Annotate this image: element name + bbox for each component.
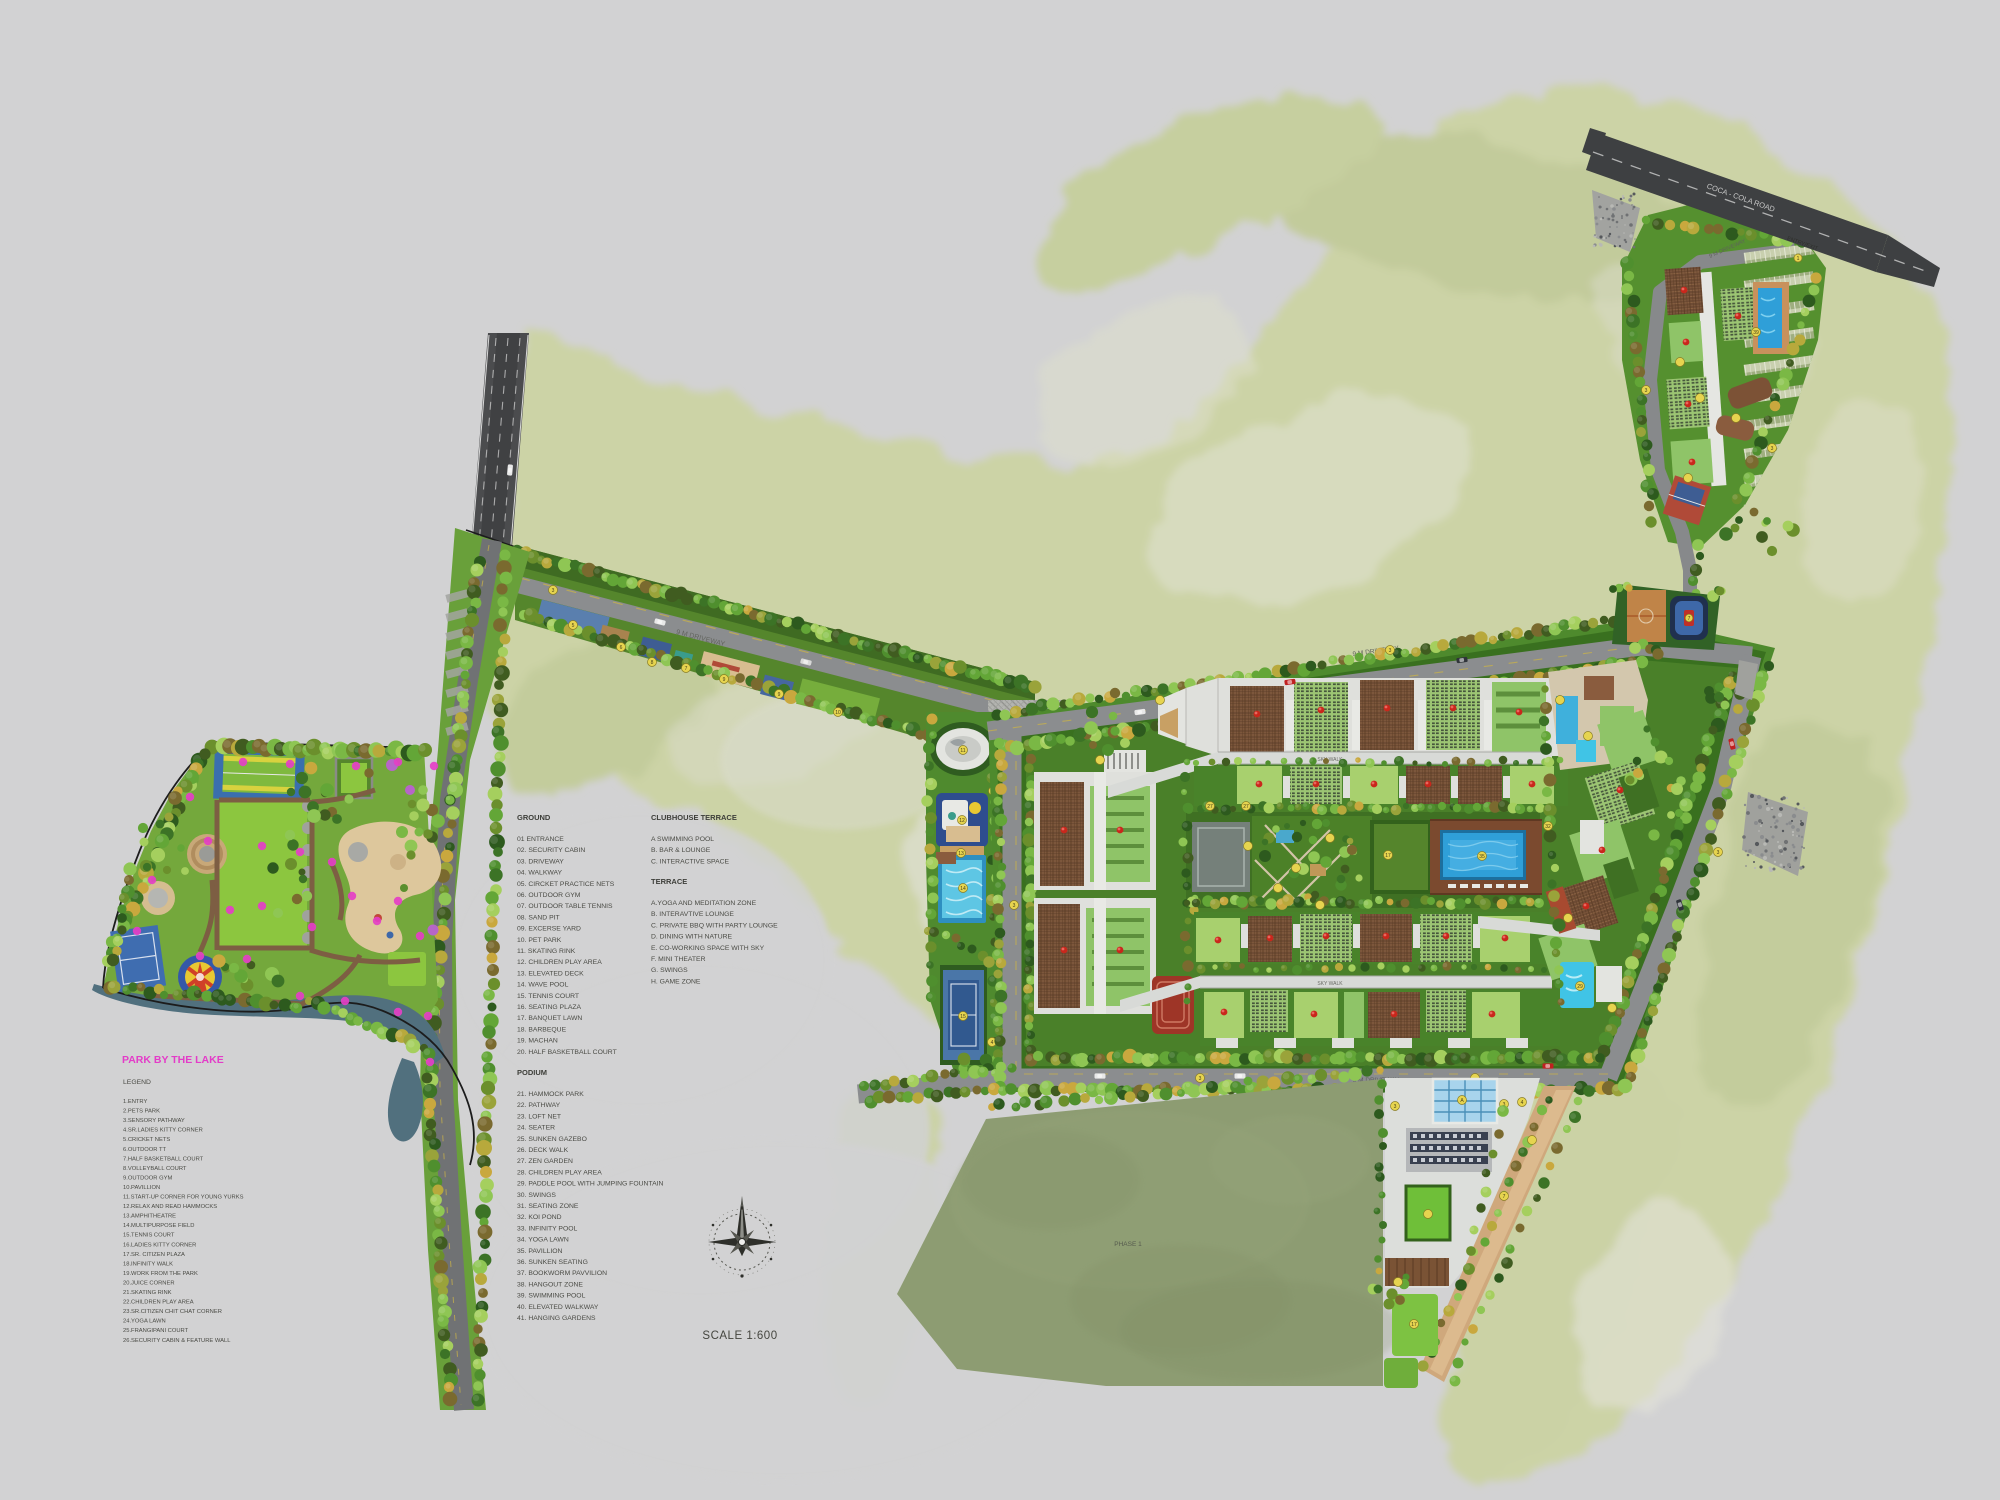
svg-text:22.CHILDREN PLAY AREA: 22.CHILDREN PLAY AREA bbox=[123, 1300, 194, 1306]
svg-text:23. LOFT NET: 23. LOFT NET bbox=[517, 1113, 561, 1120]
svg-text:12.RELAX AND READ HAMMOCKS: 12.RELAX AND READ HAMMOCKS bbox=[123, 1204, 217, 1210]
svg-text:SKY WALK: SKY WALK bbox=[1317, 981, 1343, 987]
svg-text:F. MINI THEATER: F. MINI THEATER bbox=[651, 956, 706, 963]
svg-text:02. SECURITY CABIN: 02. SECURITY CABIN bbox=[517, 847, 585, 854]
svg-text:13.AMPHITHEATRE: 13.AMPHITHEATRE bbox=[123, 1214, 176, 1220]
svg-text:25. SUNKEN GAZEBO: 25. SUNKEN GAZEBO bbox=[517, 1136, 587, 1143]
svg-text:39. SWIMMING POOL: 39. SWIMMING POOL bbox=[517, 1293, 586, 1300]
svg-text:06. OUTDOOR GYM: 06. OUTDOOR GYM bbox=[517, 892, 581, 899]
svg-text:15.TENNIS COURT: 15.TENNIS COURT bbox=[123, 1233, 175, 1239]
svg-text:26. DECK WALK: 26. DECK WALK bbox=[517, 1147, 569, 1154]
svg-text:34. YOGA LAWN: 34. YOGA LAWN bbox=[517, 1237, 569, 1244]
svg-text:7.HALF BASKETBALL COURT: 7.HALF BASKETBALL COURT bbox=[123, 1156, 204, 1162]
svg-text:4: 4 bbox=[1521, 1100, 1524, 1106]
svg-text:11.START-UP CORNER FOR YOUNG Y: 11.START-UP CORNER FOR YOUNG YURKS bbox=[123, 1195, 244, 1201]
svg-text:10: 10 bbox=[835, 710, 841, 716]
svg-text:14.MULTIPURPOSE FIELD: 14.MULTIPURPOSE FIELD bbox=[123, 1223, 194, 1229]
svg-text:15: 15 bbox=[960, 1014, 966, 1020]
svg-text:5: 5 bbox=[572, 623, 575, 629]
svg-text:18.INFINITY WALK: 18.INFINITY WALK bbox=[123, 1261, 173, 1267]
svg-text:37. BOOKWORM PAVVILION: 37. BOOKWORM PAVVILION bbox=[517, 1270, 607, 1277]
svg-text:28. CHILDREN PLAY AREA: 28. CHILDREN PLAY AREA bbox=[517, 1169, 602, 1176]
svg-text:08. SAND PIT: 08. SAND PIT bbox=[517, 914, 560, 921]
svg-text:5.CRICKET NETS: 5.CRICKET NETS bbox=[123, 1137, 170, 1143]
svg-text:39: 39 bbox=[1753, 330, 1759, 336]
svg-text:21. HAMMOCK PARK: 21. HAMMOCK PARK bbox=[517, 1091, 584, 1098]
svg-text:11. SKATING RINK: 11. SKATING RINK bbox=[517, 948, 576, 955]
svg-text:18. BARBEQUE: 18. BARBEQUE bbox=[517, 1026, 567, 1033]
svg-text:14: 14 bbox=[960, 886, 966, 892]
svg-text:9: 9 bbox=[778, 692, 781, 698]
svg-text:26.SECURITY CABIN & FEATURE WA: 26.SECURITY CABIN & FEATURE WALL bbox=[123, 1338, 231, 1344]
svg-text:35. PAVILLION: 35. PAVILLION bbox=[517, 1248, 563, 1255]
svg-text:9.OUTDOOR GYM: 9.OUTDOOR GYM bbox=[123, 1175, 172, 1181]
svg-text:TERRACE: TERRACE bbox=[651, 877, 687, 886]
svg-text:29. PADDLE POOL WITH JUMPING F: 29. PADDLE POOL WITH JUMPING FOUNTAIN bbox=[517, 1181, 663, 1188]
svg-text:38. HANGOUT ZONE: 38. HANGOUT ZONE bbox=[517, 1281, 583, 1288]
svg-text:1.ENTRY: 1.ENTRY bbox=[123, 1099, 148, 1105]
svg-text:20. HALF BASKETBALL COURT: 20. HALF BASKETBALL COURT bbox=[517, 1049, 617, 1056]
svg-text:7: 7 bbox=[1688, 616, 1691, 622]
svg-text:10.PAVILLION: 10.PAVILLION bbox=[123, 1185, 160, 1191]
svg-text:CLUBHOUSE TERRACE: CLUBHOUSE TERRACE bbox=[651, 813, 737, 822]
svg-text:17: 17 bbox=[1411, 1322, 1417, 1328]
svg-text:E. CO-WORKING SPACE WITH SKY: E. CO-WORKING SPACE WITH SKY bbox=[651, 945, 765, 952]
svg-text:17: 17 bbox=[1385, 853, 1391, 859]
svg-text:6: 6 bbox=[620, 645, 623, 651]
svg-text:20.JUICE CORNER: 20.JUICE CORNER bbox=[123, 1280, 175, 1286]
svg-text:12: 12 bbox=[959, 818, 965, 824]
svg-text:C. INTERACTIVE SPACE: C. INTERACTIVE SPACE bbox=[651, 858, 730, 865]
svg-text:16.LADIES KITTY CORNER: 16.LADIES KITTY CORNER bbox=[123, 1242, 196, 1248]
svg-text:24. SEATER: 24. SEATER bbox=[517, 1125, 555, 1132]
svg-text:25.FRANGIPANI COURT: 25.FRANGIPANI COURT bbox=[123, 1328, 189, 1334]
svg-text:PARK BY THE LAKE: PARK BY THE LAKE bbox=[122, 1054, 224, 1066]
svg-text:10. PET PARK: 10. PET PARK bbox=[517, 937, 562, 944]
svg-text:19.WORK FROM THE PARK: 19.WORK FROM THE PARK bbox=[123, 1271, 198, 1277]
svg-text:PHASE 1: PHASE 1 bbox=[1114, 1241, 1142, 1248]
svg-text:24.YOGA LAWN: 24.YOGA LAWN bbox=[123, 1319, 166, 1325]
svg-text:21.SKATING RINK: 21.SKATING RINK bbox=[123, 1290, 172, 1296]
svg-text:22. PATHWAY: 22. PATHWAY bbox=[517, 1102, 561, 1109]
svg-text:13. ELEVATED DECK: 13. ELEVATED DECK bbox=[517, 970, 584, 977]
svg-text:14. WAVE POOL: 14. WAVE POOL bbox=[517, 982, 569, 989]
svg-text:3: 3 bbox=[1645, 388, 1648, 394]
svg-text:36. SUNKEN SEATING: 36. SUNKEN SEATING bbox=[517, 1259, 588, 1266]
svg-text:B. INTERAVTIVE LOUNGE: B. INTERAVTIVE LOUNGE bbox=[651, 911, 734, 918]
svg-text:3: 3 bbox=[552, 588, 555, 594]
svg-text:8: 8 bbox=[651, 660, 654, 666]
svg-text:05. CIRCKET PRACTICE NETS: 05. CIRCKET PRACTICE NETS bbox=[517, 881, 615, 888]
svg-text:4: 4 bbox=[991, 1040, 994, 1046]
svg-text:H. GAME ZONE: H. GAME ZONE bbox=[651, 978, 701, 985]
svg-text:3.SENSORY PATHWAY: 3.SENSORY PATHWAY bbox=[123, 1118, 185, 1124]
svg-text:17.SR. CITIZEN PLAZA: 17.SR. CITIZEN PLAZA bbox=[123, 1252, 185, 1258]
svg-text:3: 3 bbox=[1389, 648, 1392, 654]
svg-text:35: 35 bbox=[1479, 854, 1485, 860]
svg-text:41. HANGING GARDENS: 41. HANGING GARDENS bbox=[517, 1315, 596, 1322]
svg-text:1: 1 bbox=[1797, 256, 1800, 262]
svg-text:13: 13 bbox=[958, 851, 964, 857]
svg-text:3: 3 bbox=[1394, 1104, 1397, 1110]
svg-text:12. CHILDREN PLAY AREA: 12. CHILDREN PLAY AREA bbox=[517, 959, 602, 966]
svg-text:27: 27 bbox=[1243, 804, 1249, 810]
svg-text:16. SEATING PLAZA: 16. SEATING PLAZA bbox=[517, 1004, 582, 1011]
svg-text:7: 7 bbox=[1503, 1194, 1506, 1200]
svg-text:03. DRIVEWAY: 03. DRIVEWAY bbox=[517, 858, 564, 865]
svg-text:D. DINING WITH NATURE: D. DINING WITH NATURE bbox=[651, 934, 733, 941]
svg-text:A SWIMMING POOL: A SWIMMING POOL bbox=[651, 836, 714, 843]
svg-text:B. BAR & LOUNGE: B. BAR & LOUNGE bbox=[651, 847, 711, 854]
svg-text:11: 11 bbox=[960, 748, 965, 754]
svg-text:23.SR.CITIZEN CHIT CHAT CORNER: 23.SR.CITIZEN CHIT CHAT CORNER bbox=[123, 1309, 222, 1315]
svg-text:LEGEND: LEGEND bbox=[123, 1079, 151, 1086]
svg-text:40. ELEVATED WALKWAY: 40. ELEVATED WALKWAY bbox=[517, 1304, 599, 1311]
svg-text:3: 3 bbox=[1199, 1076, 1202, 1082]
svg-text:07. OUTDOOR TABLE TENNIS: 07. OUTDOOR TABLE TENNIS bbox=[517, 903, 613, 910]
svg-text:9: 9 bbox=[723, 677, 726, 683]
svg-text:8.VOLLEYBALL COURT: 8.VOLLEYBALL COURT bbox=[123, 1166, 187, 1172]
svg-text:19. MACHAN: 19. MACHAN bbox=[517, 1038, 558, 1045]
svg-text:29: 29 bbox=[1577, 984, 1583, 990]
svg-text:04. WALKWAY: 04. WALKWAY bbox=[517, 870, 563, 877]
svg-text:A.YOGA AND MEDITATION ZONE: A.YOGA AND MEDITATION ZONE bbox=[651, 900, 757, 907]
svg-text:7: 7 bbox=[685, 666, 688, 672]
svg-text:PODIUM: PODIUM bbox=[517, 1068, 547, 1077]
svg-text:4.SR.LADIES KITTY CORNER: 4.SR.LADIES KITTY CORNER bbox=[123, 1128, 203, 1134]
svg-text:3: 3 bbox=[1717, 850, 1720, 856]
svg-text:01 ENTRANCE: 01 ENTRANCE bbox=[517, 836, 564, 843]
svg-text:33. INFINITY POOL: 33. INFINITY POOL bbox=[517, 1225, 578, 1232]
svg-text:31. SEATING ZONE: 31. SEATING ZONE bbox=[517, 1203, 579, 1210]
svg-text:GROUND: GROUND bbox=[517, 813, 551, 822]
svg-text:C. PRIVATE BBQ WITH PARTY LOU: C. PRIVATE BBQ WITH PARTY LOUNGE bbox=[651, 922, 778, 929]
svg-text:32. KOI POND: 32. KOI POND bbox=[517, 1214, 562, 1221]
svg-text:6.OUTDOOR TT: 6.OUTDOOR TT bbox=[123, 1147, 167, 1153]
svg-text:27. ZEN GARDEN: 27. ZEN GARDEN bbox=[517, 1158, 573, 1165]
svg-text:09. EXCERSE YARD: 09. EXCERSE YARD bbox=[517, 926, 581, 933]
svg-text:15. TENNIS COURT: 15. TENNIS COURT bbox=[517, 993, 579, 1000]
svg-text:32: 32 bbox=[1545, 824, 1551, 830]
svg-text:G. SWINGS: G. SWINGS bbox=[651, 967, 688, 974]
svg-text:3: 3 bbox=[1771, 446, 1774, 452]
svg-text:27: 27 bbox=[1207, 804, 1213, 810]
svg-text:3: 3 bbox=[1013, 903, 1016, 909]
svg-text:SCALE 1:600: SCALE 1:600 bbox=[702, 1330, 777, 1342]
svg-text:30. SWINGS: 30. SWINGS bbox=[517, 1192, 556, 1199]
svg-text:2.PETS PARK: 2.PETS PARK bbox=[123, 1109, 160, 1115]
svg-text:17. BANQUET LAWN: 17. BANQUET LAWN bbox=[517, 1015, 582, 1022]
